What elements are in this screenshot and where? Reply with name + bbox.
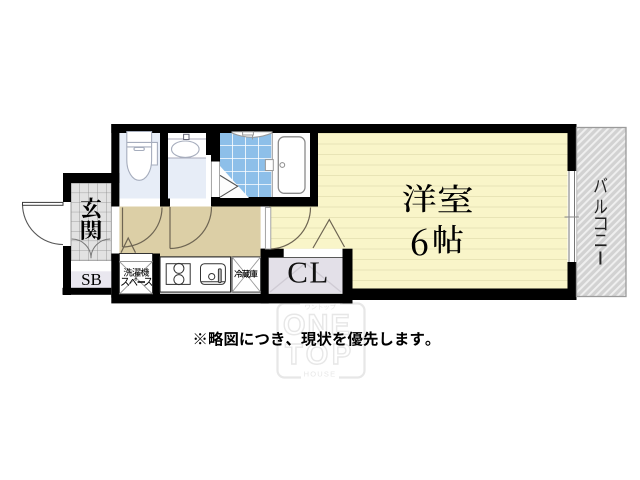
- svg-text:HOUSE: HOUSE: [304, 370, 337, 379]
- svg-text:SB: SB: [81, 270, 102, 289]
- svg-text:CL: CL: [287, 255, 330, 290]
- svg-text:ONE: ONE: [283, 310, 352, 342]
